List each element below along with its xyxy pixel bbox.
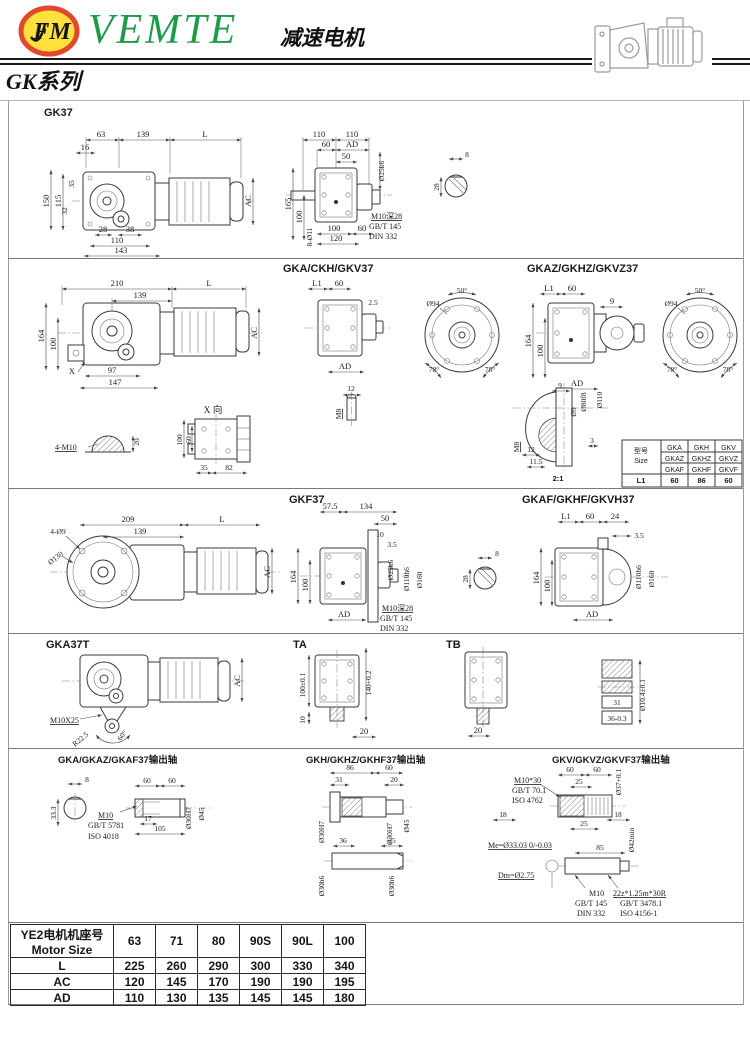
table-cell: 340 bbox=[324, 958, 366, 974]
note-label: GB/T 145 bbox=[380, 614, 412, 623]
section-gk37: GK37 63 139 L 16 150 115 35 32 28 38 110… bbox=[41, 107, 469, 256]
dim-label: Ø94 bbox=[665, 299, 678, 308]
gka37-flange-view: Ø94 50° 78° 78° bbox=[425, 286, 499, 378]
dim-label: 63 bbox=[97, 129, 106, 139]
dim-label: 139 bbox=[134, 526, 147, 536]
dim-label: 50 bbox=[342, 151, 351, 161]
dim-label: 28 bbox=[99, 224, 108, 234]
dim-label: AD bbox=[571, 378, 583, 388]
dim-label: AC bbox=[249, 327, 259, 339]
dim-label: Ø30H7 bbox=[184, 807, 193, 829]
dim-label: 57.5 bbox=[323, 501, 338, 511]
dim-label: AD bbox=[338, 609, 350, 619]
dim-label: Ø94 bbox=[427, 299, 440, 308]
table-cell: GKV bbox=[721, 445, 736, 452]
dim-label: 115 bbox=[53, 195, 63, 207]
dim-label: 60 bbox=[168, 776, 176, 785]
gkaf37-side-view: L1 60 24 3.5 164 100 AD Ø110h6 Ø160 bbox=[531, 511, 668, 620]
dim-label: 25 bbox=[388, 836, 396, 845]
dim-label: Ø110 bbox=[595, 392, 604, 409]
note-label: ISO 4156-1 bbox=[620, 909, 658, 918]
table-cell: 60 bbox=[670, 476, 678, 485]
dim-label: 100±0.1 bbox=[298, 672, 307, 697]
dim-label: X bbox=[69, 366, 75, 376]
section-gkf37: GKF37 GKAF/GKHF/GKVH37 209 139 L 4-Ø9 Ø1… bbox=[46, 494, 668, 633]
dim-label: L bbox=[202, 129, 207, 139]
dim-label: 100 bbox=[535, 345, 545, 358]
table-cell: 63 bbox=[114, 925, 156, 958]
dim-label: 78° bbox=[667, 365, 678, 374]
gkf37-side-view: 57.5 134 50 10 3.5 164 100 AD Ø25k6 Ø110… bbox=[288, 501, 424, 633]
dim-label: Ø25k6 bbox=[386, 560, 395, 581]
table-row-header: YE2电机机座号 Motor Size bbox=[11, 925, 114, 958]
table-cell: 100 bbox=[324, 925, 366, 958]
drawing-title: GK37 bbox=[44, 107, 73, 119]
drawing-title: GKA/GKAZ/GKAF37输出轴 bbox=[58, 754, 178, 766]
dim-label: 100 bbox=[294, 211, 304, 224]
note-label: GB/T 145 bbox=[369, 222, 401, 231]
gka-output-shaft: 8 33.3 60 60 17 105 Ø30H7 Ø45 M10 GB/T 5… bbox=[49, 775, 212, 841]
motor-size-table: YE2电机机座号 Motor Size 63 71 80 90S 90L 100… bbox=[10, 924, 366, 1006]
dim-label: 20 bbox=[132, 438, 141, 446]
dim-label: 25 bbox=[580, 819, 588, 828]
dim-label: AC bbox=[243, 195, 253, 207]
dim-label: Ø37+0.1 bbox=[614, 768, 623, 795]
gkv-output-shaft: 60 60 25 Ø37+0.1 18 18 25 Ø42min 85 M10*… bbox=[488, 765, 667, 918]
gk37-front-view: 63 139 L 16 150 115 35 32 28 38 110 143 … bbox=[41, 129, 253, 256]
table-cell: 90L bbox=[282, 925, 324, 958]
dim-label: 110 bbox=[313, 129, 325, 139]
gkaz37-side-view: L1 60 9 164 100 AD bbox=[523, 283, 648, 389]
table-cell: 145 bbox=[156, 974, 198, 990]
dim-label: 209 bbox=[122, 514, 135, 524]
dim-label: 60 bbox=[385, 763, 393, 772]
table-cell: GKAF bbox=[665, 467, 684, 474]
gka37-m10-boss-detail: 4-M10 20 bbox=[55, 436, 141, 452]
table-cell: 60 bbox=[724, 476, 732, 485]
note-label: M10 bbox=[589, 889, 604, 898]
table-header: 型号 bbox=[634, 446, 648, 455]
note-label: M10*30 bbox=[514, 776, 541, 785]
table-cell: 260 bbox=[156, 958, 198, 974]
section-gka37t: GKA37T TA TB M10X25 R22.5 60° AC 100±0.1… bbox=[46, 639, 647, 748]
gkh-output-shaft: 86 60 31 20 Ø30H7 Ø30H7 Ø45 36 25 Ø30h6 … bbox=[317, 763, 412, 896]
table-cell: 170 bbox=[198, 974, 240, 990]
dim-label: L bbox=[206, 278, 211, 288]
dim-label: 82 bbox=[225, 463, 233, 472]
dim-label: Ø30h6 bbox=[387, 876, 396, 897]
dim-label: 60 bbox=[184, 436, 193, 444]
table-cell: 290 bbox=[198, 958, 240, 974]
dim-label: Ø42min bbox=[627, 827, 636, 852]
dim-label: 12 bbox=[527, 445, 535, 454]
table-cell: 330 bbox=[282, 958, 324, 974]
table-cell: 300 bbox=[240, 958, 282, 974]
table-cell: 135 bbox=[198, 990, 240, 1006]
dim-label: 140+0.2 bbox=[364, 670, 373, 695]
table-cell: GKA bbox=[667, 445, 682, 452]
dim-label: 60 bbox=[322, 139, 331, 149]
dim-label: Ø30h6 bbox=[317, 876, 326, 897]
table-cell: 190 bbox=[282, 974, 324, 990]
dim-label: Ø110h6 bbox=[634, 565, 643, 589]
dim-label: 60 bbox=[335, 278, 344, 288]
l1-size-table: 型号 Size GKA GKH GKV GKAZ GKHZ GKVZ GKAF … bbox=[622, 440, 742, 487]
gkf37-shaft-key-detail: 8 28 bbox=[461, 549, 499, 589]
dim-label: L1 bbox=[312, 278, 321, 288]
dim-label: 33.3 bbox=[49, 806, 58, 819]
dim-label: 28 bbox=[432, 183, 441, 191]
table-cell: 71 bbox=[156, 925, 198, 958]
table-cell: GKH bbox=[694, 445, 709, 452]
dim-label: 105 bbox=[154, 824, 166, 833]
technical-drawings: GK37 63 139 L 16 150 115 35 32 28 38 110… bbox=[0, 0, 750, 1043]
dim-label: 8 bbox=[495, 549, 499, 558]
table-cell: 110 bbox=[114, 990, 156, 1006]
dim-label: 4-Ø9 bbox=[50, 527, 66, 536]
dim-label: 32 bbox=[60, 207, 69, 215]
table-cell: 90S bbox=[240, 925, 282, 958]
gkaz37-scale-detail: 9 Ø80f8 Ø110 Ø9 3 M8 12 11.5 2:1 bbox=[512, 381, 610, 483]
dim-label: 100 bbox=[328, 223, 341, 233]
table-row: AD 110 130 135 145 145 180 bbox=[11, 990, 366, 1006]
table-cell: 80 bbox=[198, 925, 240, 958]
dim-label: L1 bbox=[561, 511, 570, 521]
dim-label: 60 bbox=[566, 765, 574, 774]
dim-label: 20 bbox=[474, 725, 483, 735]
dim-label: 8-Ø11 bbox=[305, 227, 314, 246]
note-label: 4-M10 bbox=[55, 443, 77, 452]
dim-label: 139 bbox=[137, 129, 150, 139]
note-label: ISO 4762 bbox=[512, 796, 543, 805]
dim-label: 164 bbox=[36, 329, 46, 343]
dim-label: 9 bbox=[610, 296, 614, 306]
table-header: Size bbox=[634, 458, 648, 465]
dim-label: 60 bbox=[593, 765, 601, 774]
dim-label: Ø160 bbox=[415, 571, 424, 588]
dim-label: 165 bbox=[283, 198, 293, 211]
gk37-side-view: 110 110 60 AD 50 Ø25k6 165 100 8-Ø11 100… bbox=[283, 129, 402, 246]
dim-label: 36-0.3 bbox=[607, 714, 627, 723]
section-output-shafts: GKA/GKAZ/GKAF37输出轴 GKH/GKHZ/GKHF37输出轴 GK… bbox=[49, 754, 670, 918]
dim-label: Ø30H7 bbox=[317, 821, 326, 843]
dim-label: L1 bbox=[544, 283, 553, 293]
dim-label: 10 bbox=[298, 716, 307, 724]
scale-label: 2:1 bbox=[553, 474, 564, 483]
table-cell: 86 bbox=[697, 476, 705, 485]
dim-label: 3 bbox=[590, 436, 594, 445]
dim-label: Ø25k6 bbox=[377, 161, 386, 182]
note-label: DIN 332 bbox=[369, 232, 397, 241]
dim-label: 9 bbox=[558, 381, 562, 390]
dim-label: Ø9 bbox=[569, 407, 578, 416]
table-cell: 180 bbox=[324, 990, 366, 1006]
view-label: X 向 bbox=[204, 404, 223, 416]
dim-label: 78° bbox=[723, 365, 734, 374]
dim-label: Ø45 bbox=[197, 807, 206, 820]
ta-view: 100±0.1 140+0.2 10 20 bbox=[298, 648, 376, 737]
dim-label: 12 bbox=[347, 384, 355, 393]
table-cell: GKHF bbox=[692, 467, 711, 474]
dim-label: 16 bbox=[81, 142, 90, 152]
dim-label: Ø110h6 bbox=[402, 567, 411, 591]
dim-label: 134 bbox=[360, 501, 374, 511]
dim-label: 35 bbox=[67, 180, 76, 188]
table-cell: 130 bbox=[156, 990, 198, 1006]
dim-label: 20 bbox=[390, 775, 398, 784]
gkaz37-flange-view: Ø94 50° 78° 78° bbox=[663, 286, 737, 378]
table-row: YE2电机机座号 Motor Size 63 71 80 90S 90L 100 bbox=[11, 925, 366, 958]
dim-label: Ø10.4±0.1 bbox=[638, 679, 647, 711]
dim-label: Ø160 bbox=[647, 570, 656, 587]
dim-label: Ø45 bbox=[402, 819, 411, 832]
drawing-title: GKAZ/GKHZ/GKVZ37 bbox=[527, 263, 638, 275]
note-label: GB/T 3478.1 bbox=[620, 899, 662, 908]
dim-label: 31 bbox=[335, 775, 343, 784]
note-label: ISO 4018 bbox=[88, 832, 119, 841]
key-cross-section-detail: 31 36-0.3 Ø10.4±0.1 bbox=[598, 660, 647, 724]
gka37-side-view: L1 60 2.5 AD 12 M8 bbox=[305, 278, 390, 426]
dim-label: 2.5 bbox=[368, 298, 378, 307]
dim-label: 10 bbox=[376, 530, 384, 539]
dim-label: 31 bbox=[613, 698, 621, 707]
table-cell: GKVZ bbox=[719, 456, 739, 463]
dim-label: 8 bbox=[465, 150, 469, 159]
table-cell: GKVF bbox=[719, 467, 738, 474]
gka37-x-direction-view: X 向 100 60 35 82 bbox=[175, 404, 250, 473]
note-label: M10X25 bbox=[50, 716, 79, 725]
dim-label: 28 bbox=[461, 575, 470, 583]
note-label: DIN 332 bbox=[380, 624, 408, 633]
dim-label: 120 bbox=[330, 233, 343, 243]
dim-label: 164 bbox=[288, 570, 298, 584]
drawing-title: GKA37T bbox=[46, 639, 90, 651]
dim-label: 85 bbox=[596, 843, 604, 852]
table-row-header: AD bbox=[11, 990, 114, 1006]
dim-label: 143 bbox=[115, 245, 128, 255]
dim-label: 25 bbox=[575, 777, 583, 786]
dim-label: AD bbox=[339, 361, 351, 371]
drawing-title: GKA/CKH/GKV37 bbox=[283, 263, 373, 275]
table-row: AC 120 145 170 190 190 195 bbox=[11, 974, 366, 990]
note-label: M10深28 bbox=[382, 604, 413, 613]
dim-label: M8 bbox=[334, 409, 343, 420]
dim-label: 97 bbox=[108, 365, 117, 375]
table-cell: 195 bbox=[324, 974, 366, 990]
table-header-en: Motor Size bbox=[11, 943, 113, 957]
table-cell: 145 bbox=[282, 990, 324, 1006]
note-label: GB/T 70.1 bbox=[512, 786, 546, 795]
dim-label: 150 bbox=[41, 195, 51, 208]
dim-label: 18 bbox=[499, 810, 507, 819]
gka37-front-view: 210 139 L 164 100 97 147 X AC bbox=[36, 278, 262, 388]
dim-label: 100 bbox=[300, 579, 310, 592]
table-cell: 120 bbox=[114, 974, 156, 990]
dim-label: 11.5 bbox=[530, 457, 543, 466]
dim-label: 3.5 bbox=[387, 540, 397, 549]
gk37-shaft-key-detail: 8 28 bbox=[432, 150, 469, 197]
dim-label: 50° bbox=[695, 286, 706, 295]
dim-label: 35 bbox=[200, 463, 208, 472]
catalog-page: { "header": { "logo_text": "FM", "brand"… bbox=[0, 0, 750, 1043]
dim-label: AC bbox=[232, 675, 242, 687]
note-label: GB/T 145 bbox=[575, 899, 607, 908]
dim-label: 100 bbox=[542, 580, 552, 593]
drawing-title: TA bbox=[293, 639, 307, 651]
dim-label: 18 bbox=[614, 810, 622, 819]
dim-label: R22.5 bbox=[71, 730, 91, 749]
section-gka37: GKA/CKH/GKV37 GKAZ/GKHZ/GKVZ37 210 139 L… bbox=[36, 263, 742, 487]
table-cell: 190 bbox=[240, 974, 282, 990]
note-label: Me=Ø33.03 0/-0.03 bbox=[488, 841, 552, 850]
table-row-header: AC bbox=[11, 974, 114, 990]
dim-label: 20 bbox=[360, 726, 369, 736]
dim-label: AC bbox=[262, 566, 272, 578]
table-cell: GKAZ bbox=[665, 456, 685, 463]
dim-label: 60 bbox=[568, 283, 577, 293]
table-cell: L1 bbox=[637, 476, 646, 485]
dim-label: 110 bbox=[111, 235, 123, 245]
dim-label: 60 bbox=[143, 776, 151, 785]
dim-label: AD bbox=[346, 139, 358, 149]
dim-label: 3.5 bbox=[634, 531, 644, 540]
dim-label: 210 bbox=[111, 278, 124, 288]
table-header-cn: YE2电机机座号 bbox=[11, 926, 113, 943]
dim-label: Ø80f8 bbox=[579, 392, 588, 411]
tb-view: 20 bbox=[465, 647, 507, 736]
dim-label: 38 bbox=[126, 224, 135, 234]
dim-label: 36 bbox=[339, 836, 347, 845]
dim-label: 50° bbox=[457, 286, 468, 295]
dim-label: M8 bbox=[512, 442, 521, 453]
drawing-title: GKAF/GKHF/GKVH37 bbox=[522, 494, 634, 506]
table-cell: 145 bbox=[240, 990, 282, 1006]
dim-label: 60 bbox=[586, 511, 595, 521]
dim-label: 100 bbox=[48, 338, 58, 351]
dim-label: 17 bbox=[144, 814, 152, 823]
dim-label: 164 bbox=[523, 334, 533, 348]
note-label: GB/T 5781 bbox=[88, 821, 124, 830]
dim-label: 86 bbox=[346, 763, 354, 772]
gka37t-front-view: M10X25 R22.5 60° AC bbox=[50, 655, 245, 748]
note-label: DIN 332 bbox=[577, 909, 605, 918]
dim-label: 8 bbox=[85, 775, 89, 784]
dim-label: 100 bbox=[175, 434, 184, 446]
table-row-header: L bbox=[11, 958, 114, 974]
dim-label: L bbox=[219, 514, 224, 524]
note-label: Dm=Ø2.75 bbox=[498, 871, 534, 880]
dim-label: 139 bbox=[134, 290, 147, 300]
note-label: M10 bbox=[98, 811, 113, 820]
table-cell: 225 bbox=[114, 958, 156, 974]
table-cell: GKHZ bbox=[692, 456, 712, 463]
note-label: M10深28 bbox=[371, 212, 402, 221]
dim-label: 24 bbox=[611, 511, 620, 521]
drawing-title: GKF37 bbox=[289, 494, 324, 506]
note-label: 22z*1.25m*30R bbox=[613, 889, 667, 898]
dim-label: 147 bbox=[109, 377, 122, 387]
dim-label: 78° bbox=[429, 365, 440, 374]
dim-label: 50 bbox=[381, 513, 390, 523]
dim-label: 164 bbox=[531, 571, 541, 585]
gkf37-front-view: 209 139 L 4-Ø9 Ø130 AC bbox=[46, 514, 280, 608]
dim-label: 110 bbox=[346, 129, 358, 139]
table-row: L 225 260 290 300 330 340 bbox=[11, 958, 366, 974]
dim-label: AD bbox=[586, 609, 598, 619]
drawing-title: TB bbox=[446, 639, 461, 651]
dim-label: 78° bbox=[485, 365, 496, 374]
drawing-title: GKH/GKHZ/GKHF37输出轴 bbox=[306, 754, 426, 766]
dim-label: 60 bbox=[358, 223, 367, 233]
dim-label: Ø130 bbox=[46, 549, 65, 567]
